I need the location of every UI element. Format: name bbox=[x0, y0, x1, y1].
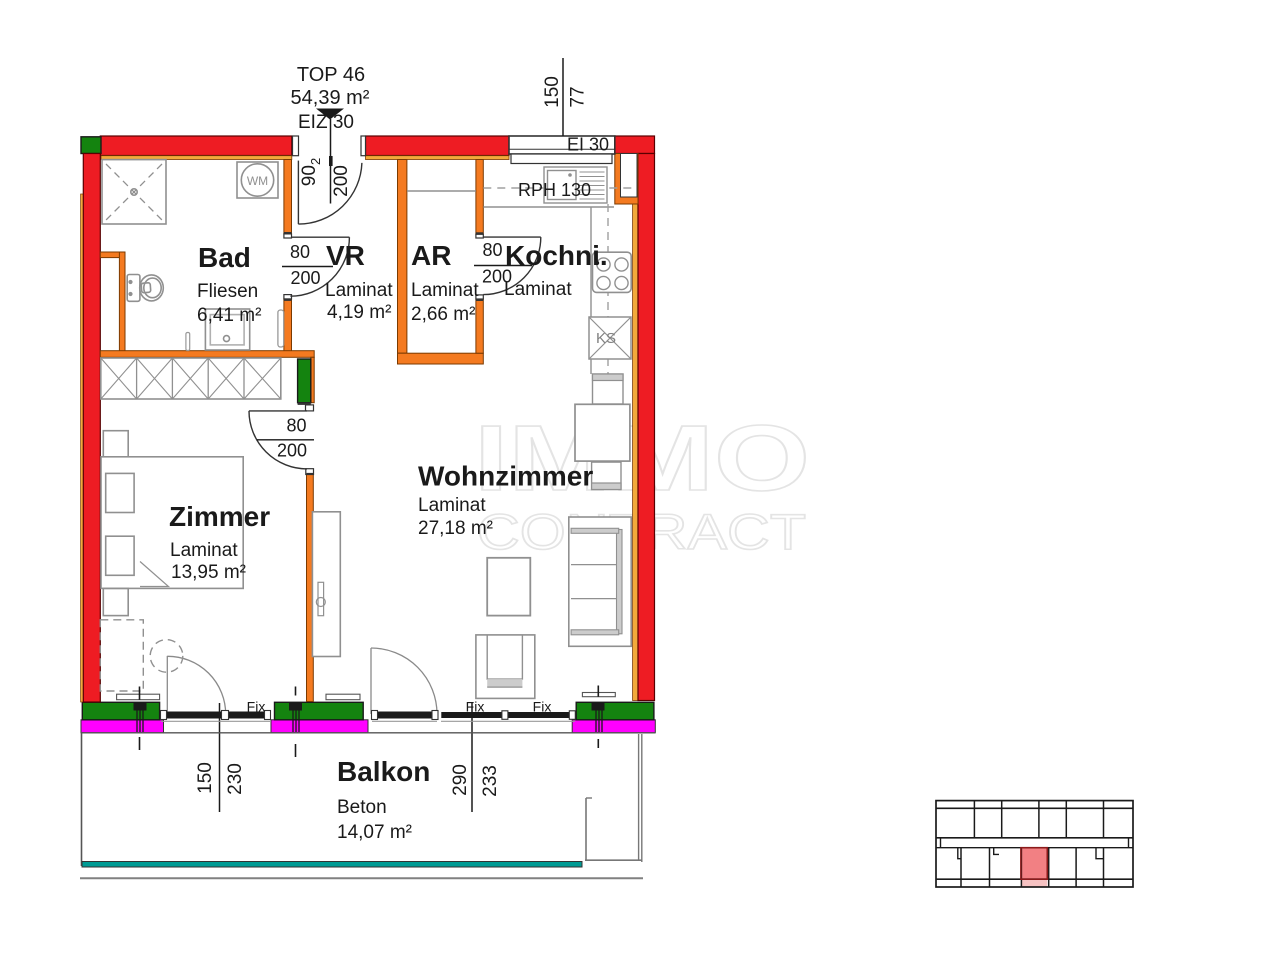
svg-text:230: 230 bbox=[225, 763, 246, 795]
svg-text:150: 150 bbox=[542, 76, 563, 108]
svg-text:Fix: Fix bbox=[533, 699, 552, 715]
svg-text:200: 200 bbox=[277, 441, 307, 461]
svg-text:Balkon: Balkon bbox=[337, 756, 430, 787]
svg-text:Laminat: Laminat bbox=[504, 279, 572, 300]
svg-text:TOP 46: TOP 46 bbox=[297, 64, 365, 86]
svg-text:EI 30: EI 30 bbox=[567, 135, 609, 155]
svg-text:27,18 m²: 27,18 m² bbox=[418, 518, 493, 539]
svg-text:Bad: Bad bbox=[198, 242, 251, 273]
svg-text:WM: WM bbox=[247, 174, 268, 188]
svg-text:80: 80 bbox=[482, 240, 502, 260]
svg-text:2,66 m²: 2,66 m² bbox=[411, 304, 475, 325]
svg-text:Fix: Fix bbox=[247, 699, 266, 715]
svg-text:14,07 m²: 14,07 m² bbox=[337, 822, 412, 843]
svg-text:6,41 m²: 6,41 m² bbox=[197, 305, 261, 326]
svg-text:Wohnzimmer: Wohnzimmer bbox=[418, 461, 593, 492]
svg-text:80: 80 bbox=[286, 416, 306, 436]
svg-text:Laminat: Laminat bbox=[418, 495, 486, 516]
svg-text:200: 200 bbox=[290, 268, 320, 288]
svg-text:Laminat: Laminat bbox=[170, 540, 238, 561]
svg-text:Beton: Beton bbox=[337, 797, 387, 818]
svg-text:290: 290 bbox=[450, 764, 471, 796]
svg-text:Fix: Fix bbox=[466, 699, 485, 715]
svg-text:Laminat: Laminat bbox=[325, 280, 393, 301]
svg-text:VR: VR bbox=[326, 240, 365, 271]
svg-text:Kochni.: Kochni. bbox=[505, 240, 608, 271]
svg-text:77: 77 bbox=[568, 86, 589, 107]
svg-text:KS: KS bbox=[596, 330, 616, 347]
svg-text:Fliesen: Fliesen bbox=[197, 281, 258, 302]
svg-text:80: 80 bbox=[290, 242, 310, 262]
svg-text:54,39 m²: 54,39 m² bbox=[291, 87, 370, 109]
svg-text:4,19 m²: 4,19 m² bbox=[327, 302, 391, 323]
svg-text:233: 233 bbox=[480, 765, 501, 797]
svg-text:RPH 130: RPH 130 bbox=[518, 180, 591, 200]
svg-text:200: 200 bbox=[331, 165, 352, 197]
svg-text:Laminat: Laminat bbox=[411, 280, 479, 301]
svg-text:AR: AR bbox=[411, 240, 451, 271]
svg-text:Zimmer: Zimmer bbox=[169, 501, 270, 532]
svg-text:13,95 m²: 13,95 m² bbox=[171, 562, 246, 583]
svg-text:150: 150 bbox=[195, 762, 216, 794]
